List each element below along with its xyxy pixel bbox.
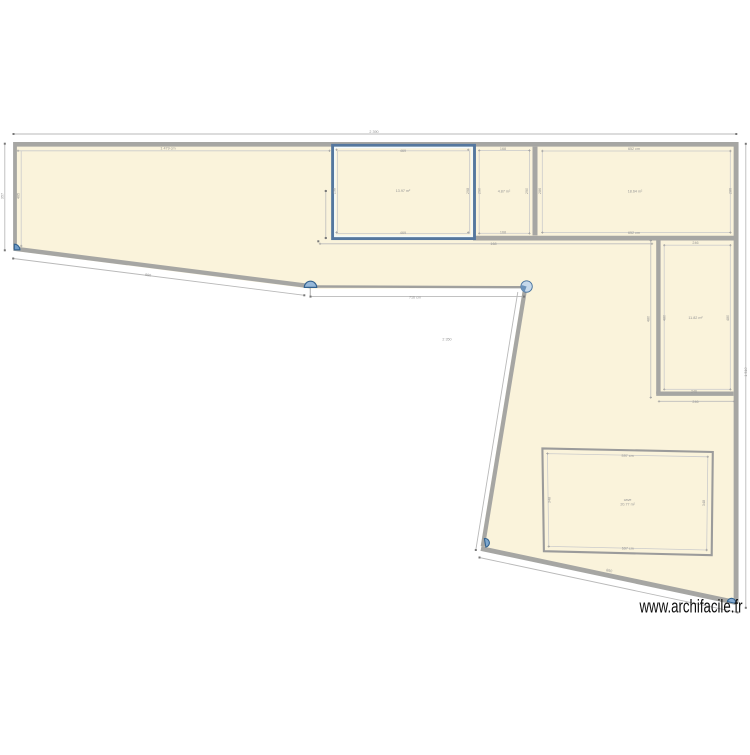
- svg-text:480: 480: [663, 315, 667, 321]
- svg-text:290: 290: [478, 188, 482, 194]
- svg-text:480: 480: [726, 315, 730, 321]
- svg-text:348: 348: [547, 497, 551, 503]
- svg-text:298: 298: [466, 188, 470, 194]
- svg-text:597 cm: 597 cm: [622, 546, 634, 550]
- svg-text:597 cm: 597 cm: [622, 454, 634, 458]
- svg-text:11.82 m²: 11.82 m²: [688, 316, 703, 320]
- svg-text:18.64 m²: 18.64 m²: [628, 190, 643, 194]
- svg-text:246: 246: [692, 241, 698, 245]
- svg-text:469: 469: [400, 149, 406, 153]
- svg-text:290: 290: [525, 188, 529, 194]
- svg-text:www.archifacile.fr: www.archifacile.fr: [639, 596, 743, 617]
- svg-text:168: 168: [500, 231, 506, 235]
- svg-text:469: 469: [400, 231, 406, 235]
- svg-text:1 479 cm: 1 479 cm: [160, 147, 175, 151]
- svg-text:357: 357: [1, 193, 5, 199]
- svg-text:990: 990: [145, 273, 152, 278]
- svg-text:20.77 m²: 20.77 m²: [620, 503, 635, 507]
- svg-text:4.87 m²: 4.87 m²: [498, 189, 511, 193]
- svg-text:480: 480: [646, 316, 650, 322]
- svg-text:286: 286: [729, 188, 733, 194]
- svg-text:13.97 m²: 13.97 m²: [396, 189, 411, 193]
- svg-text:246: 246: [692, 400, 698, 404]
- svg-text:716 cm: 716 cm: [409, 296, 421, 300]
- svg-text:465: 465: [17, 193, 21, 199]
- svg-text:286: 286: [538, 188, 542, 194]
- svg-text:168: 168: [490, 242, 496, 246]
- svg-text:246: 246: [691, 389, 697, 393]
- svg-text:2 350: 2 350: [442, 338, 451, 342]
- svg-text:cave: cave: [624, 498, 632, 502]
- svg-text:348: 348: [702, 500, 706, 506]
- svg-text:298: 298: [332, 188, 336, 194]
- svg-text:652 cm: 652 cm: [628, 231, 640, 235]
- svg-text:2 390: 2 390: [369, 130, 378, 134]
- svg-text:652 cm: 652 cm: [628, 147, 640, 151]
- svg-text:168: 168: [500, 147, 506, 151]
- svg-text:1 510: 1 510: [744, 367, 748, 376]
